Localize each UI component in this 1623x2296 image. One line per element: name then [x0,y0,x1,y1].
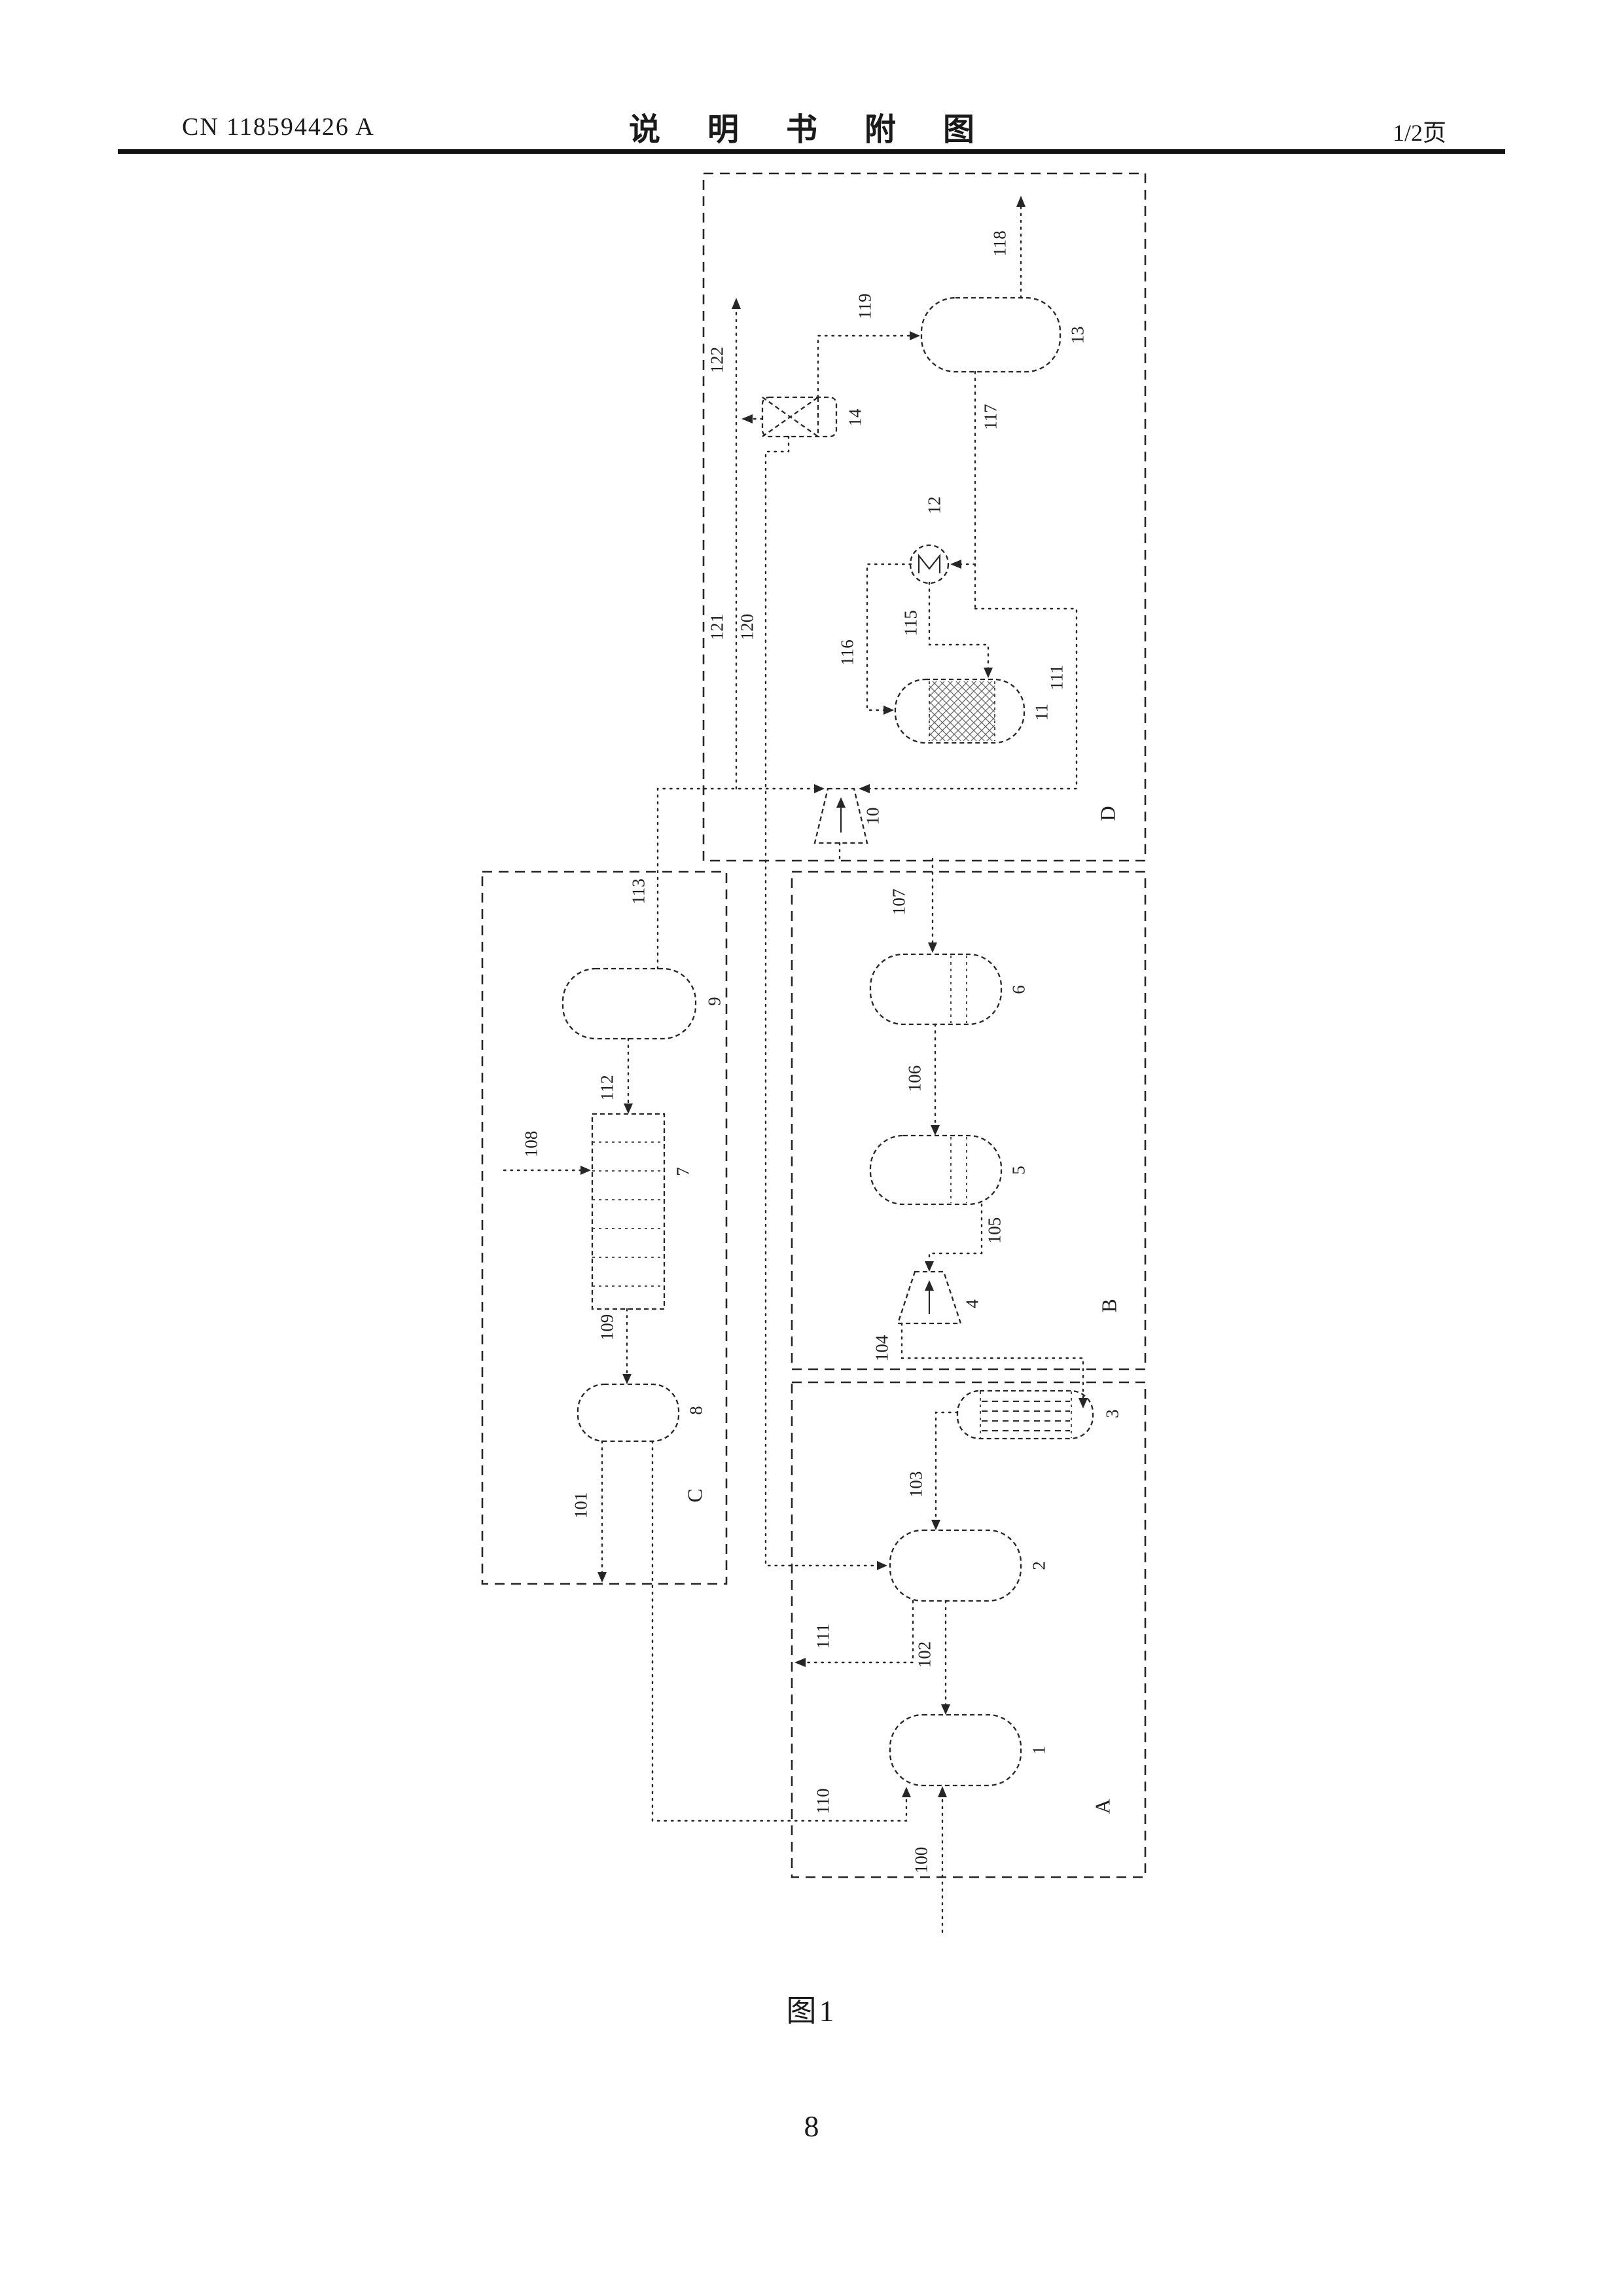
heat-exchanger-14 [762,397,836,437]
label-equip-8: 8 [687,1406,707,1415]
vessel-8 [578,1384,679,1441]
label-stream-109: 109 [597,1314,618,1341]
mixer-4 [898,1272,961,1323]
stream-line-102 [941,1601,950,1715]
stream-line-122-121 [732,298,762,789]
label-stream-113: 113 [629,878,649,905]
vessel-2 [890,1530,1021,1601]
vessel-13 [921,298,1060,372]
stream-line-108 [504,1166,591,1175]
label-equip-9: 9 [705,997,725,1006]
vessel-6 [870,954,1001,1024]
label-equip-5: 5 [1009,1166,1029,1175]
page-number: 8 [0,2109,1623,2144]
label-section-d: D [1096,806,1120,821]
label-equip-6: 6 [1009,985,1029,994]
label-stream-112: 112 [597,1075,618,1101]
figure-caption: 图1 [0,1987,1623,2030]
label-stream-108: 108 [522,1131,542,1158]
heat-exchanger-3 [957,1391,1093,1439]
label-stream-101: 101 [571,1492,592,1519]
stream-line-120 [766,437,887,1570]
stream-line-112 [624,1039,633,1114]
label-stream-100: 100 [912,1847,932,1874]
section-box-d [704,173,1145,861]
stream-line-113 [658,784,825,969]
stream-line-111-a [794,1601,913,1667]
label-equip-14: 14 [846,409,866,427]
column-7 [592,1114,664,1309]
label-stream-117: 117 [981,404,1001,430]
label-stream-104: 104 [872,1335,893,1362]
vessel-9 [563,969,696,1039]
label-stream-116: 116 [838,639,858,666]
label-stream-111-d: 111 [1047,665,1067,691]
label-stream-105: 105 [985,1217,1005,1244]
stream-line-105 [925,1204,982,1272]
label-section-b: B [1097,1299,1122,1312]
stream-line-115 [929,583,993,678]
vessel-5 [870,1136,1001,1204]
stream-line-106 [931,1024,940,1136]
stream-line-117 [950,372,975,609]
patent-drawing-page: CN 118594426 A 说 明 书 附 图 1/2页 [0,0,1623,2296]
reactor-11 [895,679,1024,743]
label-stream-110: 110 [813,1788,834,1814]
label-equip-1: 1 [1029,1746,1050,1755]
label-equip-7: 7 [673,1167,694,1176]
label-stream-115: 115 [901,610,921,636]
label-stream-122: 122 [707,347,728,374]
label-equip-12: 12 [925,497,945,514]
mixer-10 [815,789,867,843]
label-stream-121: 121 [707,614,728,641]
section-box-c [482,872,726,1584]
label-stream-111-a: 111 [813,1624,834,1649]
label-equip-10: 10 [863,808,883,825]
label-equip-3: 3 [1103,1409,1123,1418]
label-equip-2: 2 [1029,1561,1050,1570]
stream-line-107 [928,859,937,953]
section-box-b [792,872,1145,1369]
stream-line-116 [867,564,911,715]
label-stream-120: 120 [738,614,758,641]
vessel-1 [890,1715,1021,1785]
label-section-c: C [683,1488,707,1502]
label-stream-103: 103 [906,1471,927,1498]
label-equip-4: 4 [963,1299,983,1308]
compressor-12 [910,545,948,583]
label-equip-13: 13 [1068,327,1088,344]
stream-line-109 [622,1309,632,1384]
stream-line-119 [818,331,920,397]
stream-line-118 [1016,196,1026,298]
catalyst-bed [929,681,995,741]
stream-line-100 [938,1786,947,1932]
label-equip-11: 11 [1032,704,1052,721]
label-stream-119: 119 [855,293,876,319]
stream-line-104 [902,1323,1088,1408]
stream-line-101 [597,1441,607,1583]
label-stream-102: 102 [915,1641,935,1668]
label-stream-106: 106 [905,1066,925,1092]
stream-line-103 [931,1412,957,1530]
process-flow-diagram [0,0,1623,2296]
label-stream-118: 118 [990,230,1010,257]
label-section-a: A [1091,1799,1115,1814]
label-stream-107: 107 [889,889,910,916]
